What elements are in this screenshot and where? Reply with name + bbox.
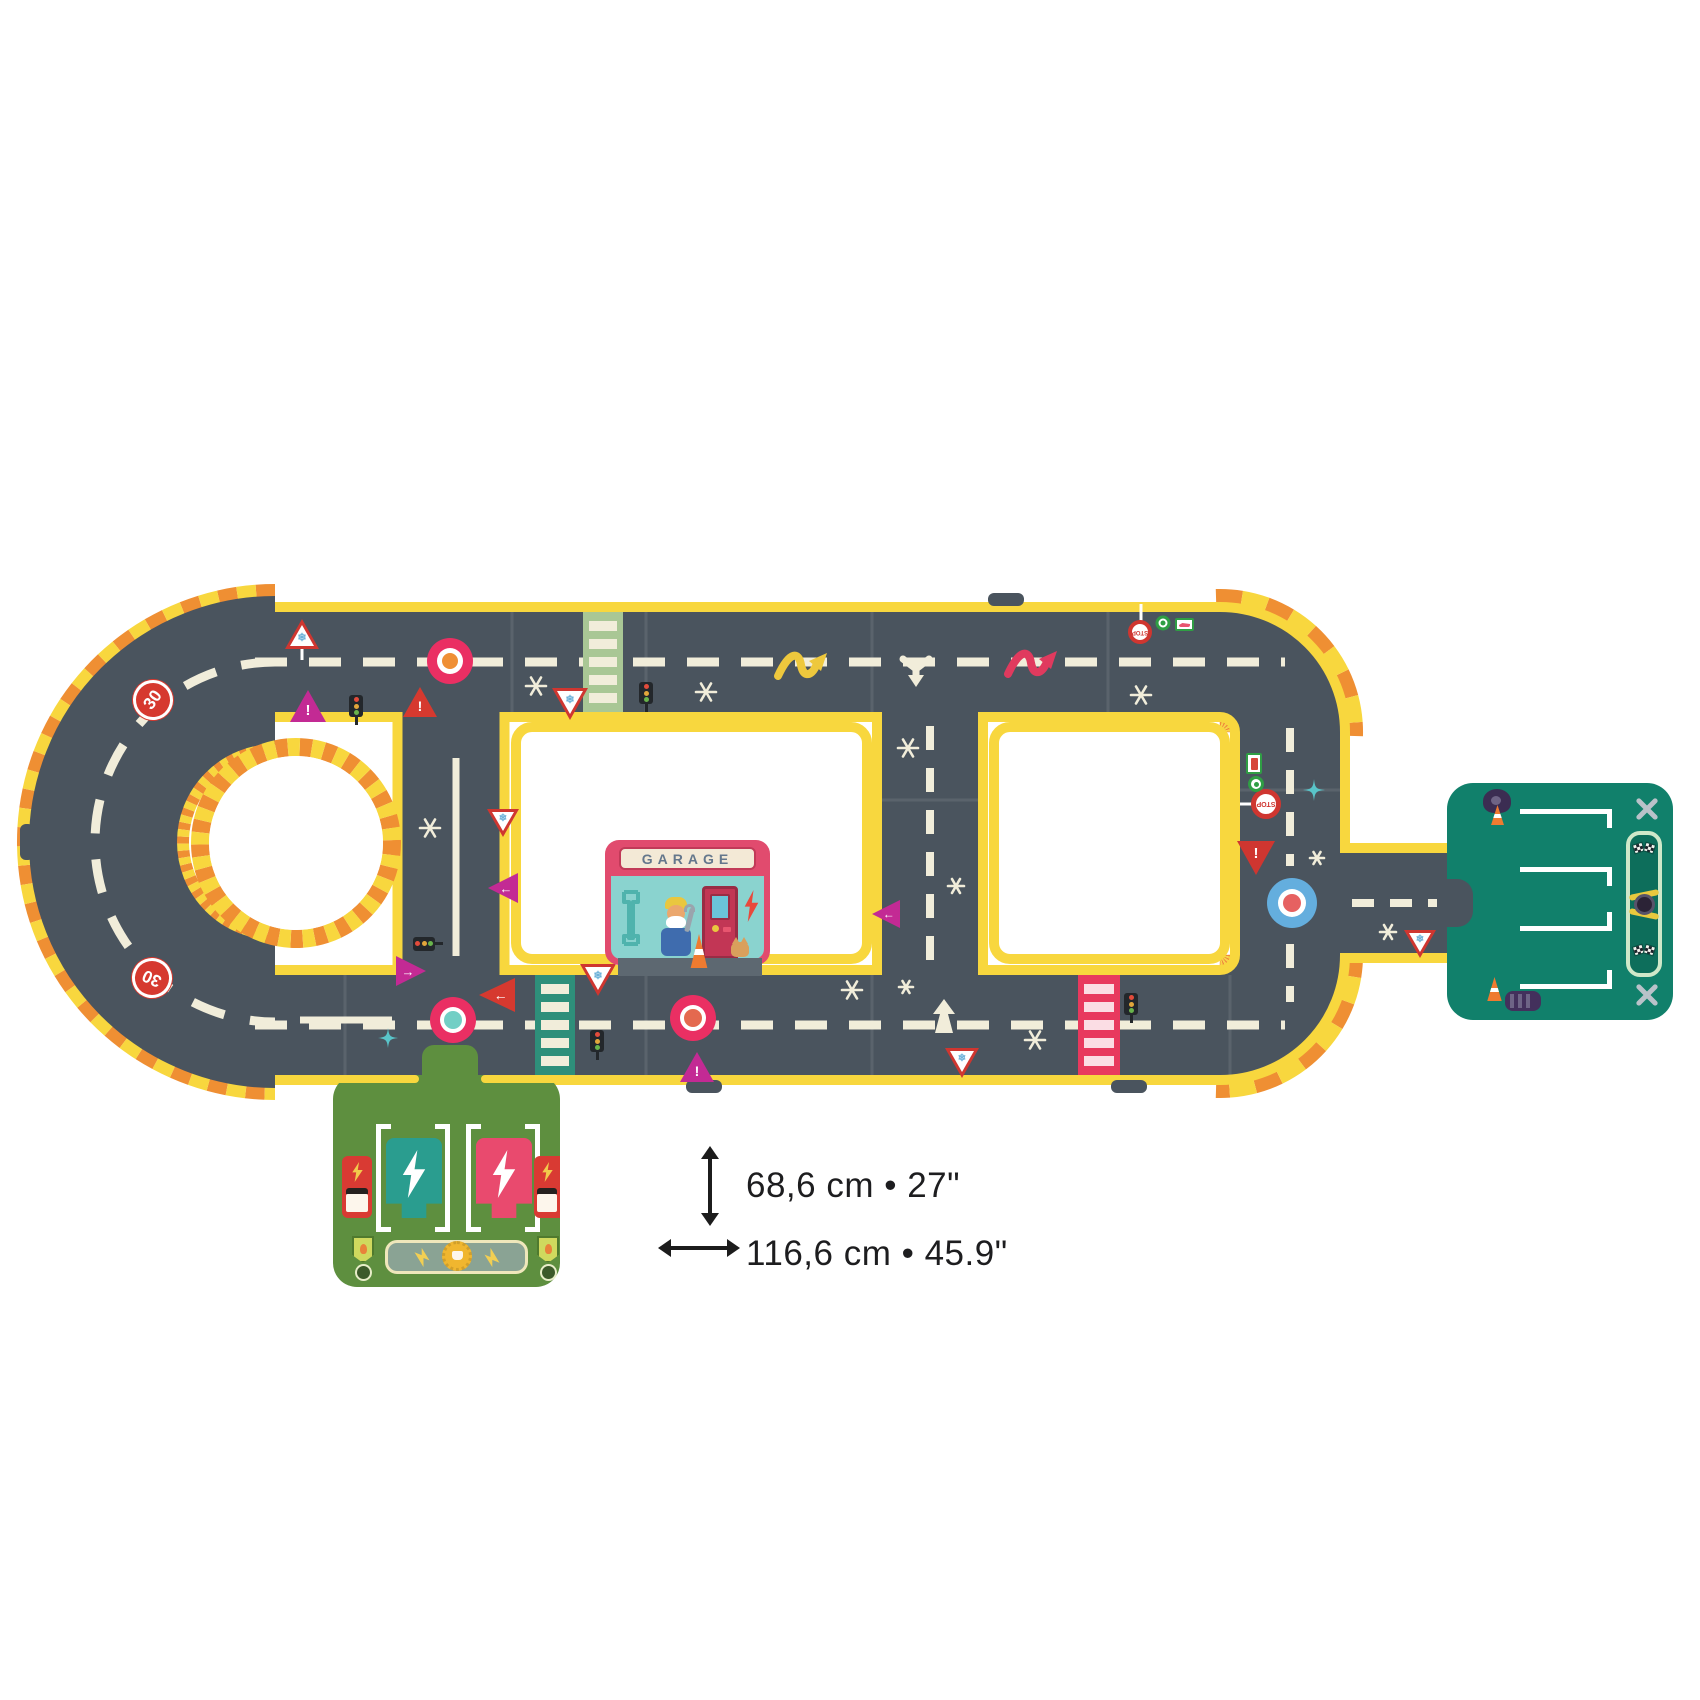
crosswalk-green-bottom [535,975,575,1075]
crosswalk-green-top [583,612,623,712]
charging-station-piece [333,1075,560,1287]
speed-limit-text: 30 [139,687,166,714]
medal-icon [540,1264,557,1281]
direction-sign-magenta: ← [488,873,518,903]
crossed-wrenches-icon [1633,795,1661,823]
warning-sign-magenta: ! [290,690,326,722]
checkered-flag-icon [1643,842,1657,855]
edge-line [333,1075,419,1083]
stop-sign-text: STOP [1257,801,1276,808]
width-dimension-label: 116,6 cm • 45.9" [746,1234,1008,1274]
snowflake-icon: ❄ [499,814,507,824]
edge-line [481,1075,560,1083]
width-dimension-arrow [658,1239,740,1257]
fuel-pump-icon [342,1156,372,1218]
parking-bay-line [1607,970,1612,989]
height-dimension-label: 68,6 cm • 27" [746,1166,960,1206]
yield-snow-sign: ❄ [1404,930,1436,958]
speed-limit-text: 30 [139,965,165,991]
lightning-icon [415,1246,430,1270]
wrench-icon [617,886,645,950]
parking-bay-line [1607,809,1612,828]
exhaust-pipe-icon [1505,991,1541,1011]
badge-icon [537,1236,559,1263]
snowflake-icon: ❄ [1416,935,1424,945]
tire-icon [1634,894,1655,915]
puzzle-tab [422,1045,478,1085]
medal-icon [355,1264,372,1281]
warning-sign-magenta: ! [680,1052,714,1082]
direction-sign-magenta: ← [872,900,900,928]
ev-charging-sign [1156,616,1171,631]
garage-sign-text: GARAGE [642,851,733,867]
yield-snow-sign: ❄ [580,964,616,996]
traffic-light-icon [639,682,653,712]
checkered-flag-icon [1643,944,1657,957]
parking-bay-line [1520,984,1612,989]
traffic-light-icon [413,937,443,951]
stop-sign: STOP [1251,789,1281,819]
exclamation-icon: ! [418,699,423,713]
road-network [0,0,1700,1700]
energy-arrow-icon [400,1150,428,1198]
exclamation-icon: ! [695,1064,700,1078]
snowflake-icon: ❄ [593,971,602,982]
traffic-light-icon [1124,993,1138,1023]
warning-sign-red: ! [1237,841,1275,875]
station-banner [385,1240,528,1274]
parking-bay-line [1520,867,1612,872]
exclamation-icon: ! [306,703,311,718]
yield-snow-sign: ❄ [552,688,588,720]
snowflake-icon: ❄ [565,695,574,706]
crosswalk-red [1078,975,1120,1075]
plug-icon [452,1251,463,1260]
snowflake-icon: ❄ [958,1054,966,1064]
badge-icon [352,1236,374,1263]
snowflake-icon: ❄ [297,633,306,644]
exclamation-icon: ! [1254,846,1259,861]
race-car-sticker [1175,618,1194,631]
direction-sign-magenta: → [396,956,426,986]
fuel-pump-icon [534,1156,560,1218]
yield-snow-sign: ❄ [945,1048,979,1078]
parking-bay-line [1607,912,1612,931]
yield-snow-sign: ❄ [285,619,319,649]
height-dimension-arrow [701,1146,719,1226]
parking-bay-line [1520,809,1612,814]
race-banner [1626,831,1662,977]
mechanic-character [653,896,699,960]
crossed-wrenches-icon [1633,981,1661,1009]
stop-sign-text: STOP [1132,629,1148,635]
yield-snow-sign: ❄ [487,809,519,837]
energy-arrow-icon [490,1150,518,1198]
fuel-station-sign [1246,753,1262,774]
arrow-right-icon: → [402,965,415,978]
arrow-left-icon: ← [500,882,513,895]
garage-sign: GARAGE [619,847,756,870]
parking-bay-line [1520,926,1612,931]
cat-icon [731,942,749,957]
product-image: 30 30 STOP STOP ❄ ❄ ❄ ❄ ❄ ❄ ! ! ! ! [0,0,1700,1700]
garage-driveway [618,958,762,976]
puzzle-tab [1437,879,1473,927]
garage-building: GARAGE [605,840,770,965]
arrow-left-icon: ← [883,908,895,920]
traffic-light-icon [590,1030,604,1060]
parking-bay-line [1607,867,1612,886]
direction-sign-red: ← [479,978,515,1012]
traffic-cone-icon [1485,977,1504,1001]
arrow-left-icon: ← [494,988,508,1002]
lightning-icon [485,1246,500,1270]
stop-sign: STOP [1128,620,1152,644]
ev-charging-sign [1248,776,1264,792]
traffic-light-icon [349,695,363,725]
parking-lot-piece [1447,783,1673,1020]
warning-sign-red: ! [403,687,437,717]
